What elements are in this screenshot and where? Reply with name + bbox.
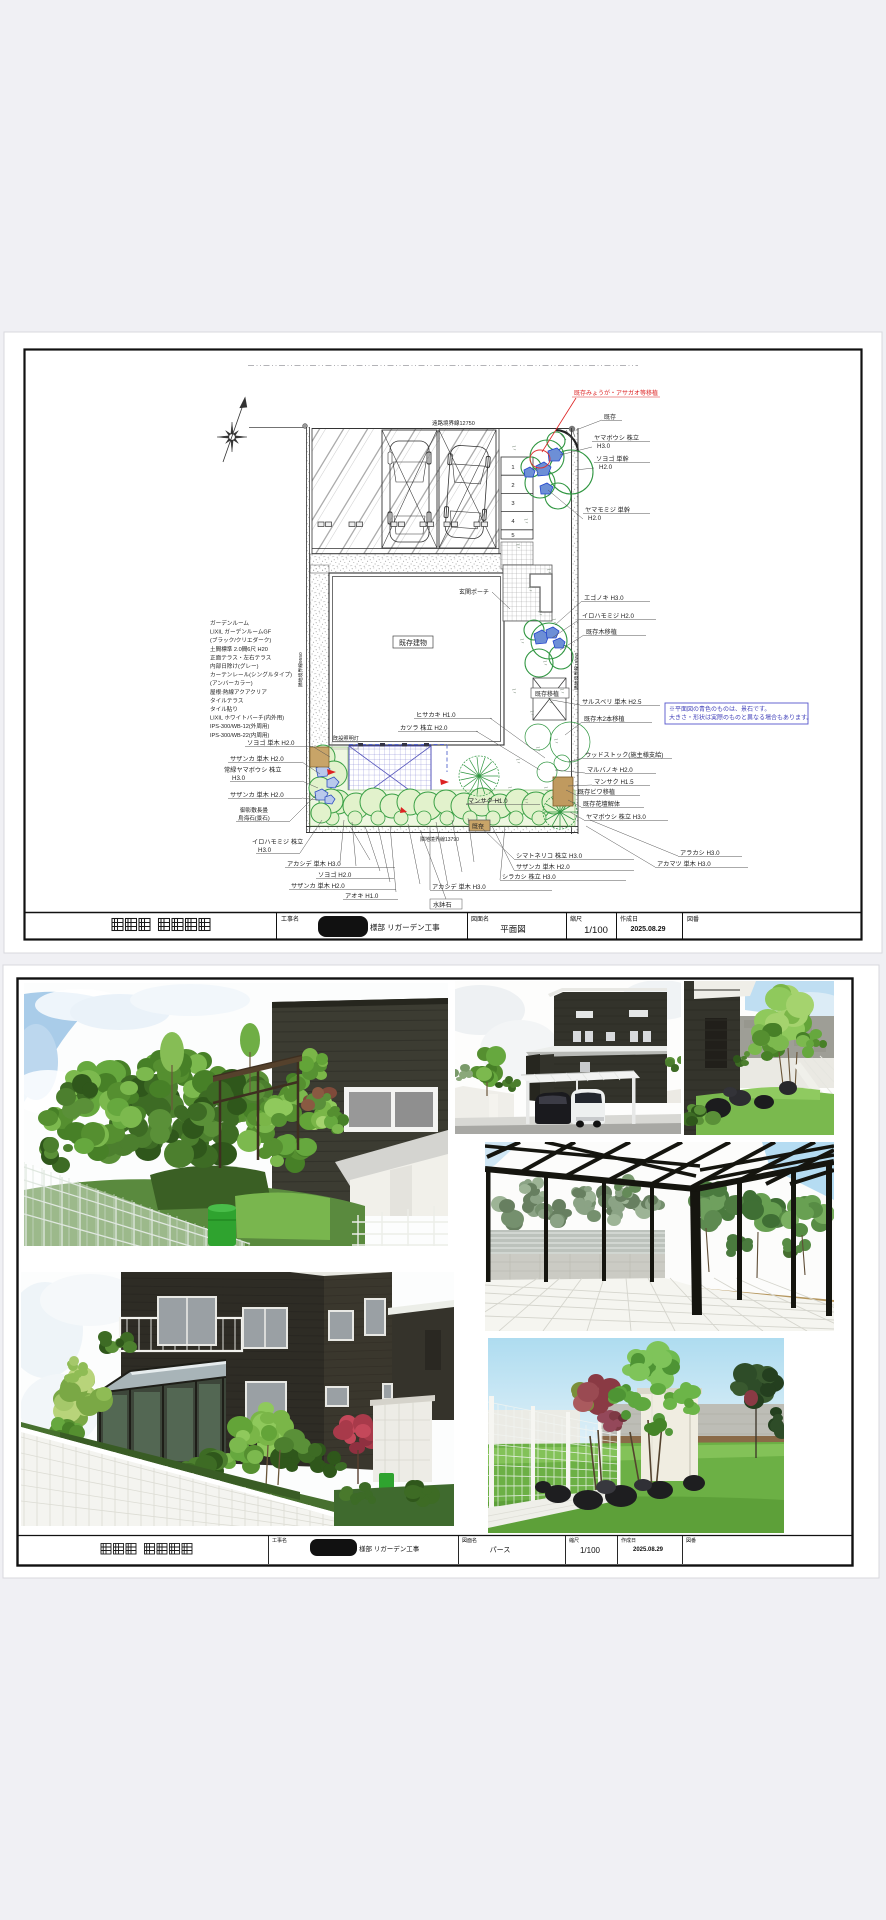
svg-text:既設照明灯: 既設照明灯: [333, 734, 359, 742]
svg-text:既存ビワ移植: 既存ビワ移植: [578, 788, 615, 796]
svg-text:ヤマボウシ 株立 H3.0: ヤマボウシ 株立 H3.0: [586, 813, 646, 821]
svg-text:ヤマモミジ 単幹: ヤマモミジ 単幹: [585, 506, 631, 514]
svg-text:大きさ・形状は実際のものと異なる場合もあります。: 大きさ・形状は実際のものと異なる場合もあります。: [669, 714, 812, 722]
svg-text:ガーデンルーム: ガーデンルーム: [210, 619, 249, 627]
svg-text:図面名: 図面名: [462, 1537, 477, 1544]
svg-text:図面名: 図面名: [471, 915, 489, 923]
svg-text:作成日: 作成日: [620, 915, 638, 923]
svg-text:2: 2: [511, 483, 514, 489]
svg-text:サザンカ 単木 H2.0: サザンカ 単木 H2.0: [291, 882, 345, 890]
svg-text:平面図: 平面図: [500, 924, 526, 934]
svg-text:屋根:熱線アクアクリア: 屋根:熱線アクアクリア: [210, 688, 267, 696]
svg-text:図番: 図番: [686, 1537, 696, 1544]
svg-text:2025.08.29: 2025.08.29: [633, 1547, 664, 1553]
svg-text:既存建物: 既存建物: [399, 638, 427, 647]
svg-text:ソヨゴ 単木 H2.0: ソヨゴ 単木 H2.0: [247, 739, 295, 747]
svg-text:5: 5: [511, 533, 514, 539]
svg-text:パース: パース: [490, 1546, 511, 1554]
svg-text:御影敷長畳: 御影敷長畳: [240, 806, 268, 814]
svg-text:ソヨゴ 単幹: ソヨゴ 単幹: [596, 455, 629, 463]
svg-text:カーテンレール(シングルタイプ): カーテンレール(シングルタイプ): [210, 671, 292, 679]
svg-text:図番: 図番: [687, 916, 699, 923]
svg-text:H2.0: H2.0: [588, 515, 602, 522]
svg-text:ウッドストック(施主様支給): ウッドストック(施主様支給): [585, 751, 663, 759]
svg-text:H3.0: H3.0: [597, 443, 611, 450]
svg-text:IPS-300/WB-22(内周用): IPS-300/WB-22(内周用): [210, 731, 270, 739]
svg-text:H3.0: H3.0: [258, 847, 272, 854]
svg-text:シマトネリコ 株立 H3.0: シマトネリコ 株立 H3.0: [516, 852, 583, 860]
svg-text:常緑ヤマボウシ 株立: 常緑ヤマボウシ 株立: [224, 766, 281, 774]
svg-text:サザンカ 単木 H2.0: サザンカ 単木 H2.0: [230, 755, 284, 763]
svg-text:工事名: 工事名: [272, 1537, 287, 1544]
svg-text:作成日: 作成日: [621, 1537, 636, 1544]
svg-text:マンサク H1.5: マンサク H1.5: [594, 779, 634, 786]
svg-text:サザンカ 単木 H2.0: サザンカ 単木 H2.0: [230, 791, 284, 799]
svg-text:既存移植: 既存移植: [535, 690, 559, 698]
svg-text:水鉢石: 水鉢石: [433, 901, 452, 909]
svg-text:隣地境界線9550: 隣地境界線9550: [297, 652, 304, 687]
svg-text:内部日除け(グレー): 内部日除け(グレー): [210, 662, 259, 670]
svg-text:2025.08.29: 2025.08.29: [630, 926, 665, 933]
svg-text:既存木移植: 既存木移植: [586, 628, 617, 636]
svg-text:ソヨゴ H2.0: ソヨゴ H2.0: [318, 871, 352, 879]
svg-text:LIXIL ホワイトバーチ(内外用): LIXIL ホワイトバーチ(内外用): [210, 714, 284, 722]
svg-text:縮尺: 縮尺: [569, 1537, 579, 1544]
svg-text:アオキ H1.0: アオキ H1.0: [345, 893, 379, 900]
svg-text:1: 1: [511, 465, 514, 471]
svg-text:IPS-300/WB-12(外周用): IPS-300/WB-12(外周用): [210, 722, 270, 730]
svg-text:3: 3: [511, 501, 514, 507]
svg-text:玄関ポーチ: 玄関ポーチ: [459, 588, 489, 596]
svg-text:工事名: 工事名: [281, 915, 299, 923]
svg-text:シラカシ 株立 H3.0: シラカシ 株立 H3.0: [502, 873, 556, 881]
svg-text:アカシデ 単木 H3.0: アカシデ 単木 H3.0: [432, 883, 486, 891]
svg-text:烏海石(景石): 烏海石(景石): [238, 814, 270, 822]
svg-text:カツラ 株立 H2.0: カツラ 株立 H2.0: [400, 724, 448, 732]
svg-text:サザンカ 単木 H2.0: サザンカ 単木 H2.0: [516, 863, 570, 871]
svg-text:イロハモミジ H2.0: イロハモミジ H2.0: [582, 613, 634, 620]
svg-text:隣地境界線19550: 隣地境界線19550: [573, 652, 580, 690]
svg-text:アラカシ H3.0: アラカシ H3.0: [680, 850, 720, 857]
svg-text:縮尺: 縮尺: [570, 915, 582, 923]
svg-text:正面テラス・左右テラス: 正面テラス・左右テラス: [210, 653, 272, 661]
svg-text:アカシデ 単木 H3.0: アカシデ 単木 H3.0: [287, 860, 341, 868]
svg-text:遠路境界線12750: 遠路境界線12750: [432, 419, 475, 427]
svg-text:イロハモミジ 株立: イロハモミジ 株立: [252, 838, 303, 846]
svg-text:既存: 既存: [472, 823, 484, 831]
svg-text:土間標準 2.0間6尺 H20: 土間標準 2.0間6尺 H20: [210, 645, 268, 653]
svg-text:H2.0: H2.0: [599, 464, 613, 471]
svg-text:アカマツ 単木 H3.0: アカマツ 単木 H3.0: [657, 860, 711, 868]
svg-text:1/100: 1/100: [584, 925, 608, 936]
svg-text:既存花壇解体: 既存花壇解体: [583, 800, 621, 808]
svg-text:H3.0: H3.0: [232, 775, 246, 782]
svg-text:LIXIL ガーデンルームGF: LIXIL ガーデンルームGF: [210, 628, 272, 636]
svg-text:マルバノキ H2.0: マルバノキ H2.0: [587, 767, 633, 774]
svg-text:(ブラック/クリエダーク): (ブラック/クリエダーク): [210, 636, 271, 644]
svg-text:既存みょうが・アサガオ等移植: 既存みょうが・アサガオ等移植: [574, 389, 658, 397]
svg-text:1/100: 1/100: [580, 1546, 601, 1555]
svg-text:様部 リガーデン工事: 様部 リガーデン工事: [359, 1544, 420, 1553]
svg-text:既存: 既存: [604, 413, 616, 421]
svg-text:タイル貼り: タイル貼り: [210, 705, 238, 713]
svg-text:様部 リガーデン工事: 様部 リガーデン工事: [370, 922, 440, 932]
svg-text:既存木2本移植: 既存木2本移植: [584, 715, 625, 723]
svg-text:サルスベリ 単木 H2.5: サルスベリ 単木 H2.5: [582, 698, 642, 706]
svg-text:エゴノキ H3.0: エゴノキ H3.0: [584, 594, 624, 602]
svg-text:※平面図の青色のものは、景石です。: ※平面図の青色のものは、景石です。: [669, 705, 770, 713]
svg-text:タイルテラス: タイルテラス: [210, 696, 244, 704]
svg-text:ヤマボウシ 株立: ヤマボウシ 株立: [594, 434, 639, 442]
svg-text:(アンバーカラー): (アンバーカラー): [210, 680, 253, 687]
svg-text:ヒサカキ H1.0: ヒサカキ H1.0: [416, 712, 456, 719]
